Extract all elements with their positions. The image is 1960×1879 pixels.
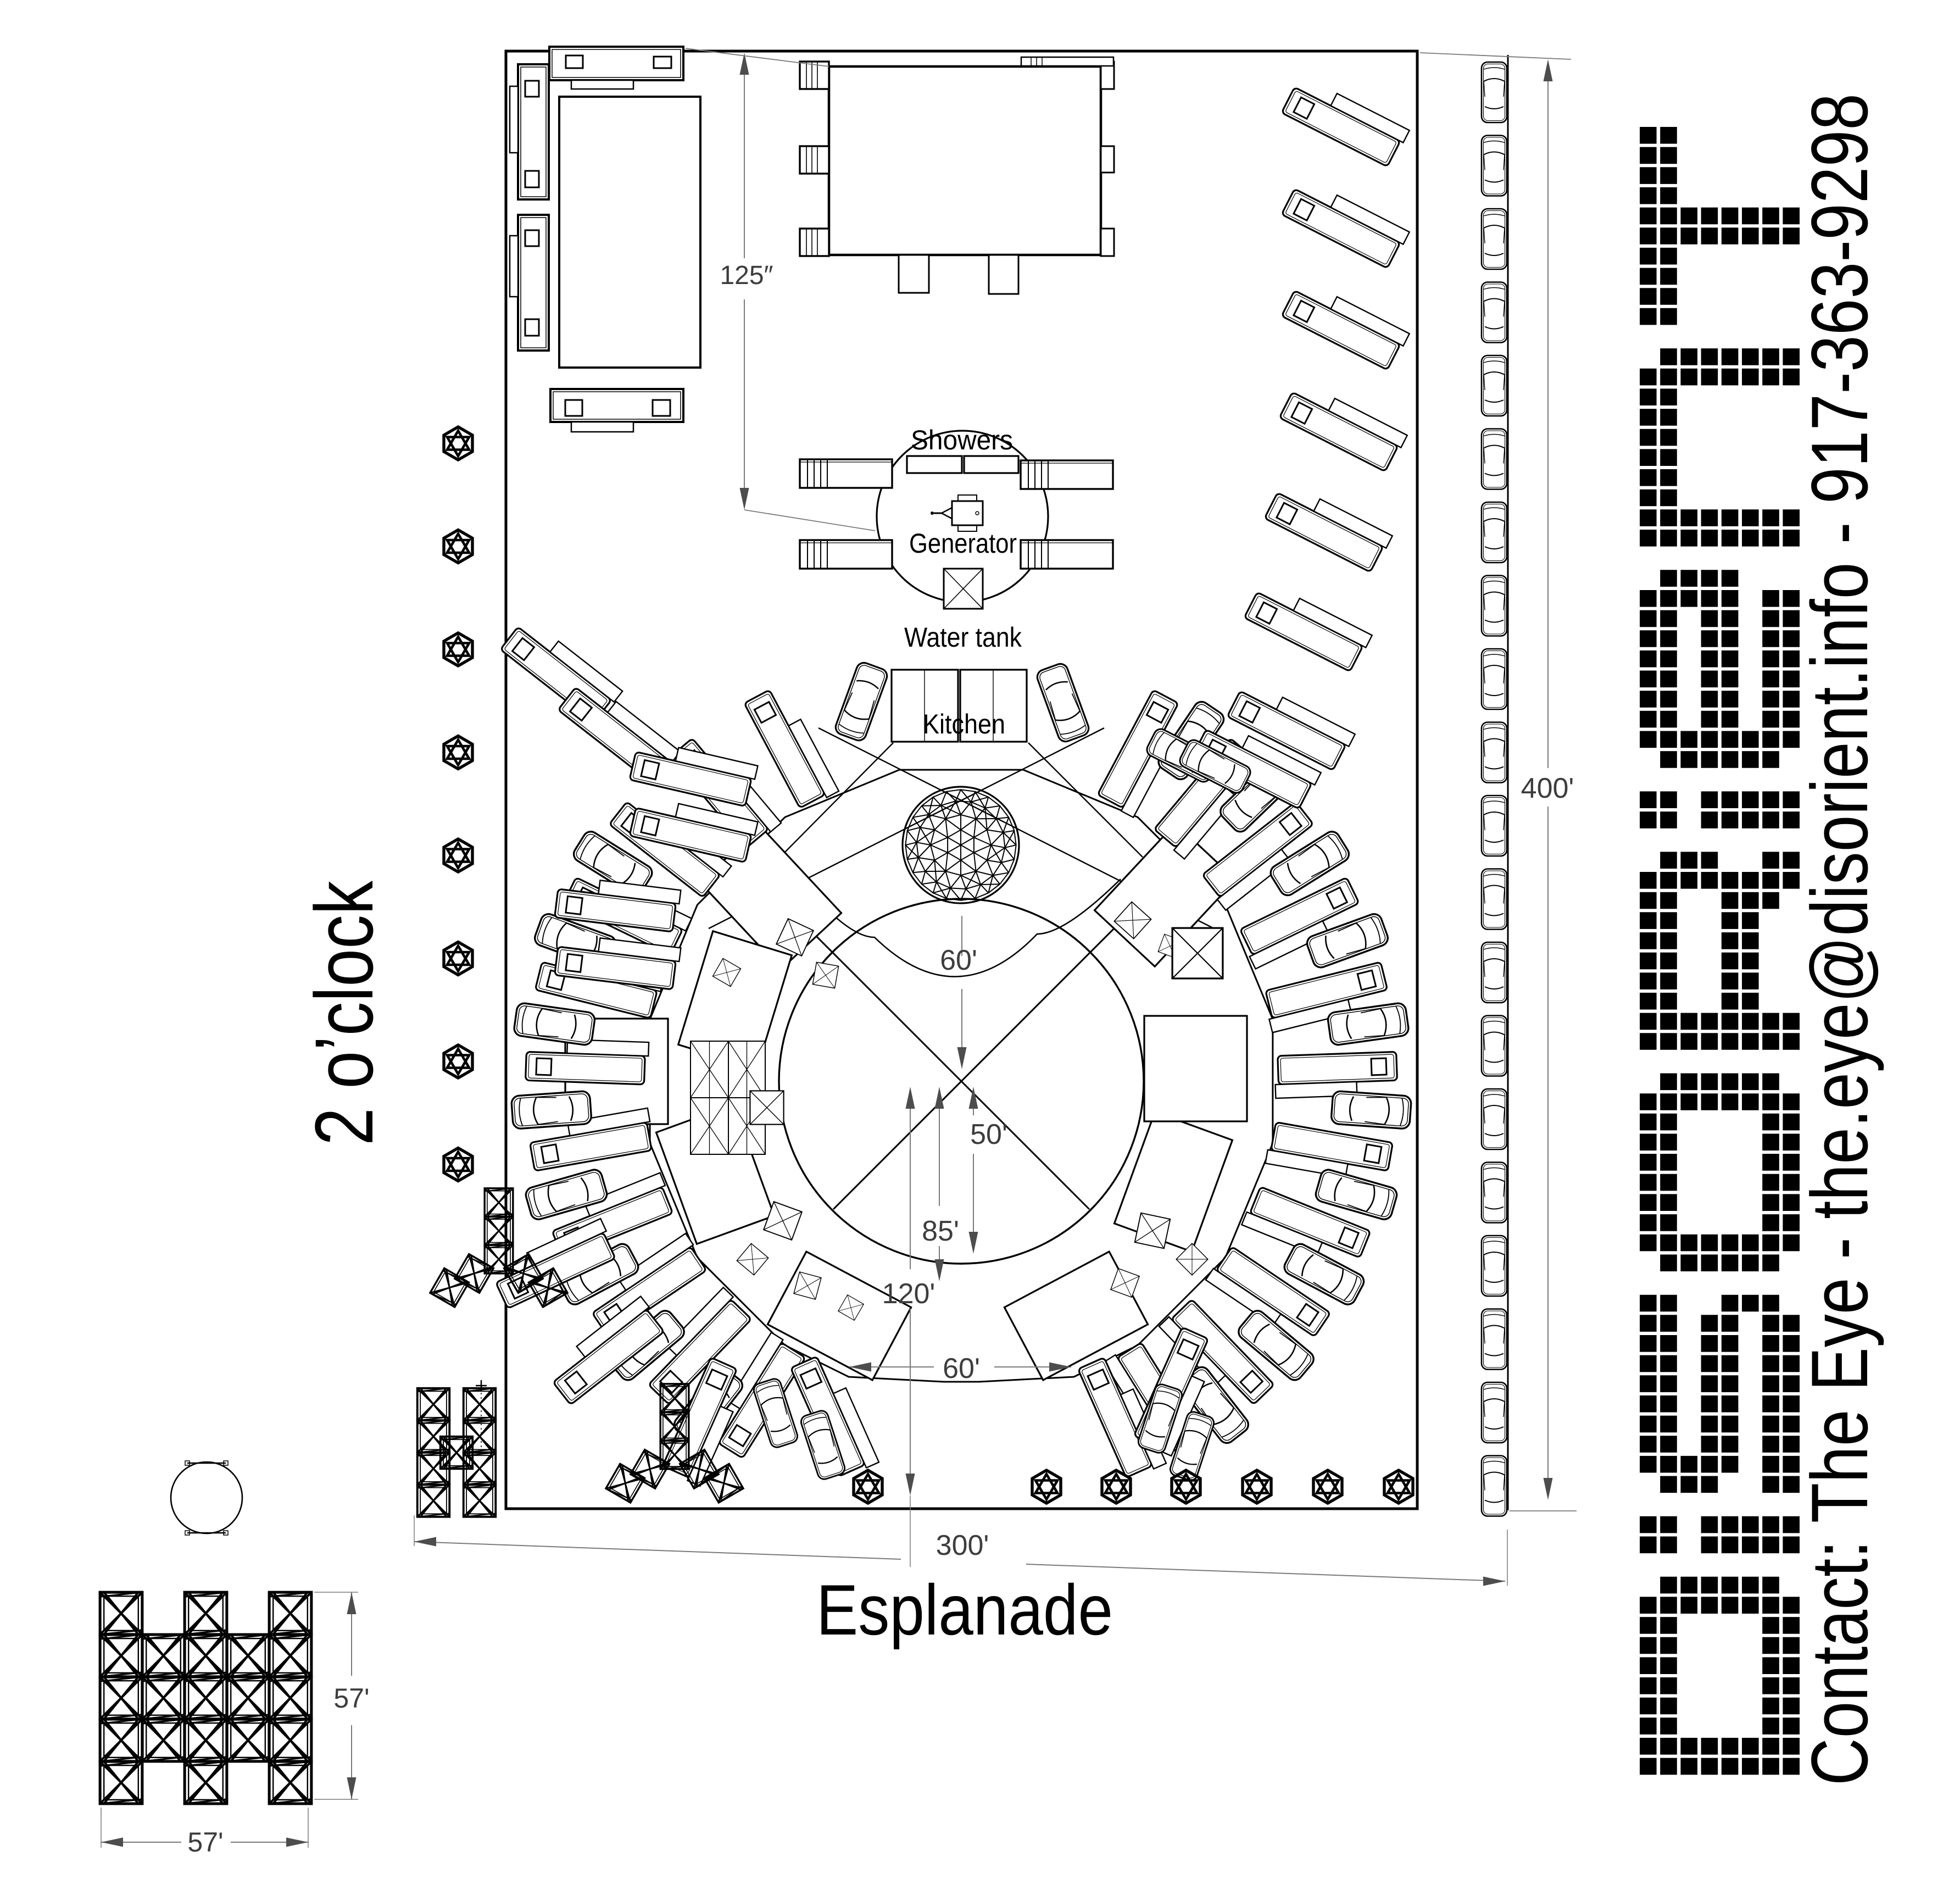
svg-text:300': 300': [936, 1530, 989, 1561]
svg-text:60': 60': [940, 944, 977, 976]
svg-text:120': 120': [882, 1278, 936, 1310]
svg-text:Contact: The Eye - the.eye@dis: Contact: The Eye - the.eye@disorient.inf…: [1795, 93, 1884, 1786]
svg-text:50': 50': [970, 1119, 1007, 1150]
svg-text:Esplanade: Esplanade: [816, 1570, 1113, 1650]
svg-text:Showers: Showers: [911, 425, 1013, 455]
svg-text:57': 57': [333, 1683, 369, 1714]
svg-text:Water tank: Water tank: [904, 622, 1022, 653]
svg-text:Kitchen: Kitchen: [923, 709, 1005, 740]
svg-text:Generator: Generator: [909, 528, 1017, 559]
svg-text:60': 60': [943, 1353, 980, 1385]
svg-text:85': 85': [922, 1215, 959, 1247]
svg-text:125″: 125″: [720, 261, 773, 290]
svg-text:2 o’clock: 2 o’clock: [298, 880, 390, 1146]
svg-text:400': 400': [1521, 772, 1574, 804]
svg-text:57': 57': [187, 1827, 223, 1858]
